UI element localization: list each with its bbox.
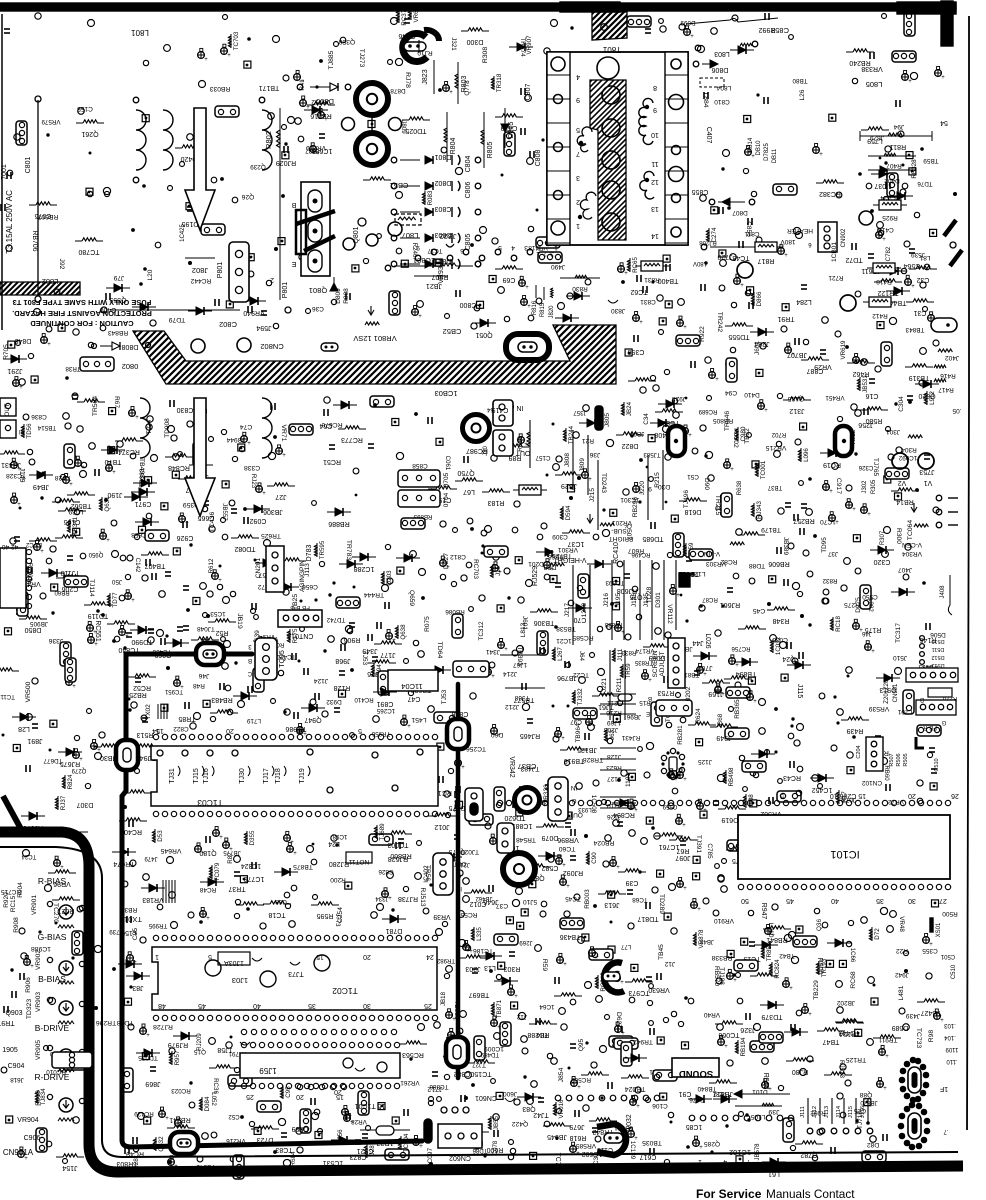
svg-text:C785: C785 (706, 843, 713, 859)
svg-text:Z201Z202: Z201Z202 (884, 676, 890, 704)
svg-text:J629: J629 (870, 134, 884, 141)
svg-text:RC15: RC15 (10, 895, 17, 912)
svg-text:R418: R418 (876, 278, 892, 285)
svg-text:TD64: TD64 (436, 642, 443, 659)
svg-text:+: + (491, 674, 495, 680)
svg-text:+: + (469, 949, 473, 955)
svg-text:D932: D932 (326, 698, 342, 705)
svg-text:CAUTION : FOR CONTINUED: CAUTION : FOR CONTINUED (30, 319, 134, 328)
svg-text:1C009: 1C009 (484, 1045, 504, 1052)
svg-text:RJ513: RJ513 (419, 887, 426, 906)
svg-text:JB905: JB905 (30, 620, 48, 627)
svg-text:TD082: TD082 (234, 545, 255, 552)
svg-text:IN: IN (570, 784, 577, 791)
svg-text:+: + (784, 253, 788, 259)
svg-text:C31: C31 (913, 309, 926, 316)
svg-text:J490: J490 (551, 263, 566, 270)
svg-text:0704: 0704 (443, 492, 450, 507)
svg-text:JB18: JB18 (440, 991, 447, 1006)
svg-text:FUSE ONLY WITH SAME TYPE F801: FUSE ONLY WITH SAME TYPE F801 T3 (13, 298, 152, 307)
svg-text:R831: R831 (644, 276, 660, 283)
svg-text:IN: IN (456, 885, 462, 891)
svg-text:RJ979: RJ979 (168, 1041, 188, 1048)
svg-text:D866: D866 (756, 291, 763, 306)
svg-text:TB171: TB171 (259, 84, 280, 91)
svg-text:TC001: TC001 (760, 460, 767, 479)
svg-text:+: + (730, 467, 734, 473)
svg-text:+: + (699, 1145, 703, 1151)
svg-text:TR444: TR444 (364, 591, 385, 598)
svg-text:C320: C320 (874, 558, 891, 565)
svg-text:T3.15AL 250V AC: T3.15AL 250V AC (5, 190, 14, 254)
svg-text:1F: 1F (940, 1085, 948, 1092)
svg-text:B-BIAS: B-BIAS (38, 974, 66, 984)
svg-text:NI: NI (19, 428, 25, 434)
svg-text:12: 12 (651, 178, 659, 185)
svg-text:+: + (219, 835, 223, 841)
svg-text:TD677: TD677 (43, 757, 63, 764)
svg-text:J30: J30 (483, 445, 489, 455)
svg-text:C69: C69 (502, 276, 515, 283)
svg-text:TD555: TD555 (728, 333, 749, 340)
svg-text:J891: J891 (27, 737, 42, 744)
svg-text:J510: J510 (893, 654, 907, 661)
svg-text:TD79: TD79 (169, 316, 186, 323)
svg-text:R600: R600 (487, 1146, 504, 1153)
svg-text:D079: D079 (542, 834, 559, 841)
svg-text:TD693: TD693 (605, 579, 624, 586)
svg-text:+: + (740, 283, 744, 289)
svg-text:R506: R506 (896, 753, 902, 766)
svg-text:J312: J312 (789, 407, 804, 414)
svg-text:L451: L451 (411, 716, 426, 723)
svg-text:VR39: VR39 (433, 913, 450, 920)
svg-text:CN201: CN201 (255, 557, 262, 578)
svg-text:.103: .103 (944, 1022, 956, 1028)
svg-text:TJ68: TJ68 (514, 694, 529, 701)
svg-text:+: + (829, 489, 833, 495)
svg-text:RJ37: RJ37 (60, 795, 67, 810)
svg-text:CNT01A: CNT01A (286, 632, 313, 639)
svg-text:1C032: 1C032 (775, 636, 782, 655)
svg-text:2: 2 (576, 198, 580, 205)
svg-text:J124: J124 (313, 677, 328, 684)
svg-text:RB860: RB860 (390, 852, 412, 859)
svg-text:C51: C51 (687, 473, 699, 480)
svg-text:VR585: VR585 (576, 1142, 597, 1149)
svg-text:R808: R808 (343, 288, 350, 304)
svg-text:TX02: TX02 (145, 704, 152, 720)
svg-text:RB483: RB483 (211, 696, 233, 703)
svg-text:+: + (703, 672, 707, 678)
svg-text:J114: J114 (836, 1105, 842, 1118)
svg-text:26: 26 (951, 792, 959, 799)
svg-text:TC703: TC703 (233, 31, 240, 50)
svg-text:RB498: RB498 (728, 767, 735, 786)
svg-text:TB823: TB823 (604, 621, 623, 628)
svg-text:L26: L26 (799, 89, 806, 100)
svg-text:J46: J46 (198, 672, 209, 679)
svg-text:J097: J097 (675, 854, 690, 861)
svg-text:C917: C917 (835, 478, 842, 494)
svg-text:TC317: TC317 (895, 623, 902, 643)
svg-text:JB22: JB22 (439, 232, 456, 241)
svg-text:T801: T801 (602, 45, 621, 54)
svg-text:R083: R083 (427, 190, 434, 205)
svg-text:TD323: TD323 (26, 999, 33, 1020)
svg-text:+: + (724, 1044, 728, 1050)
svg-text:+: + (60, 865, 64, 871)
svg-text:For Service: For Service (696, 1187, 762, 1200)
svg-text:9: 9 (576, 96, 580, 103)
svg-text:1C64: 1C64 (539, 1003, 555, 1010)
svg-text:C254: C254 (337, 907, 344, 923)
svg-text:+: + (452, 1017, 456, 1023)
svg-text:CB37: CB37 (518, 762, 537, 771)
svg-text:14: 14 (651, 232, 659, 239)
svg-text:J27: J27 (275, 493, 286, 500)
svg-text:D355: D355 (249, 830, 256, 845)
svg-text:9: 9 (416, 244, 420, 251)
svg-text:Q750: Q750 (457, 469, 474, 476)
svg-text:D808: D808 (122, 343, 139, 350)
svg-text:+: + (135, 415, 139, 421)
svg-text:+: + (204, 57, 208, 63)
svg-text:TC24: TC24 (454, 796, 461, 812)
svg-text:TD443: TD443 (838, 1029, 859, 1036)
svg-text:TC17: TC17 (427, 247, 443, 254)
svg-text:4: 4 (511, 244, 515, 251)
svg-text:VR40: VR40 (703, 1011, 720, 1018)
svg-text:+: + (688, 433, 692, 439)
svg-text:R702: R702 (771, 431, 786, 438)
svg-text:15 C206 10: 15 C206 10 (830, 792, 866, 799)
svg-text:TD035: TD035 (138, 1054, 158, 1061)
svg-text:+: + (566, 884, 570, 890)
svg-text:4: 4 (576, 73, 580, 80)
svg-text:TB875: TB875 (293, 863, 313, 870)
svg-text:TR296: TR296 (96, 1019, 117, 1026)
svg-text:R721: R721 (828, 274, 843, 281)
svg-text:V1: V1 (924, 479, 933, 486)
svg-text:+: + (40, 549, 44, 555)
svg-text:J127: J127 (607, 775, 621, 782)
svg-text:TC18: TC18 (268, 911, 285, 918)
svg-text:V-LIN: V-LIN (704, 550, 721, 557)
svg-text:L803: L803 (714, 50, 730, 57)
svg-text:+: + (764, 408, 768, 414)
svg-text:TD77: TD77 (112, 592, 119, 608)
svg-text:J63: J63 (609, 729, 616, 740)
svg-text:C802: C802 (219, 320, 237, 329)
svg-text:RC703: RC703 (472, 559, 479, 579)
svg-text:J601: J601 (754, 341, 761, 355)
svg-text:R200: R200 (330, 876, 346, 883)
svg-text:TJ18: TJ18 (275, 768, 282, 784)
svg-text:J949: J949 (716, 734, 731, 741)
svg-text:VR579: VR579 (41, 118, 60, 125)
svg-text:J12: J12 (516, 1013, 527, 1020)
svg-text:J712: J712 (427, 1085, 442, 1092)
svg-text:D801: D801 (435, 153, 452, 160)
svg-text:C: C (247, 670, 252, 676)
svg-text:+: + (131, 598, 135, 604)
svg-text:1C70: 1C70 (820, 518, 836, 525)
svg-text:VR901: VR901 (31, 895, 38, 915)
svg-text:TD56: TD56 (26, 423, 33, 439)
svg-text:R816: R816 (532, 300, 538, 315)
svg-text:C801: C801 (25, 157, 32, 174)
svg-text:TC733: TC733 (915, 1028, 922, 1049)
svg-text:TR546: TR546 (724, 411, 731, 431)
svg-text:C550: C550 (862, 593, 878, 600)
svg-text:JB19: JB19 (236, 613, 243, 629)
svg-text:+: + (588, 477, 592, 483)
svg-text:Q285: Q285 (704, 1140, 720, 1147)
svg-text:J269: J269 (519, 939, 533, 946)
svg-text:VR905: VR905 (35, 1040, 42, 1060)
svg-text:RC87: RC87 (702, 596, 718, 603)
svg-text:TB697: TB697 (469, 991, 490, 998)
svg-text:TR125: TR125 (846, 1056, 867, 1063)
svg-text:+: + (227, 53, 231, 59)
svg-text:R175: R175 (865, 626, 882, 633)
svg-text:RJ23: RJ23 (250, 474, 257, 489)
svg-text:+: + (771, 933, 775, 939)
svg-text:35: 35 (308, 1002, 316, 1009)
svg-text:L804: L804 (716, 84, 731, 91)
svg-text:J15: J15 (495, 565, 502, 576)
svg-text:B-DRIVE: B-DRIVE (35, 1023, 70, 1033)
svg-text:J217: J217 (564, 603, 571, 617)
svg-text:1C21: 1C21 (556, 637, 572, 644)
svg-text:R705: R705 (3, 344, 10, 360)
svg-text:0802: 0802 (122, 362, 139, 371)
svg-text:J149: J149 (18, 468, 25, 483)
svg-text:TB47: TB47 (823, 1038, 840, 1045)
svg-text:J618: J618 (10, 1076, 24, 1083)
svg-text:TR91: TR91 (777, 315, 794, 322)
svg-text:+: + (871, 649, 875, 655)
svg-text:C304: C304 (898, 396, 905, 412)
svg-text:TJ15: TJ15 (193, 768, 200, 784)
svg-text:TB244: TB244 (568, 425, 575, 444)
svg-text:1: 1 (155, 953, 159, 960)
svg-text:D300: D300 (467, 38, 484, 45)
svg-text:RJ343: RJ343 (756, 501, 763, 519)
svg-text:RB328: RB328 (911, 159, 918, 179)
svg-text:1J69: 1J69 (607, 719, 621, 726)
svg-text:RC382: RC382 (819, 190, 841, 197)
svg-text:TC60: TC60 (558, 845, 575, 852)
svg-text:+: + (683, 886, 687, 892)
svg-text:VR500: VR500 (25, 681, 32, 702)
svg-text:TB514: TB514 (37, 424, 56, 431)
svg-text:L267: L267 (557, 647, 564, 661)
svg-text:R215: R215 (654, 472, 661, 488)
svg-text:C510: C510 (951, 964, 957, 979)
svg-text:3: 3 (576, 174, 580, 181)
svg-text:+: + (449, 90, 453, 96)
svg-text:L24: L24 (328, 840, 340, 847)
svg-text:3: 3 (524, 244, 528, 251)
svg-text:AGINGPIN: AGINGPIN (299, 560, 306, 592)
svg-text:TC003: TC003 (387, 841, 408, 848)
svg-text:C926: C926 (177, 534, 194, 541)
svg-text:RC023: RC023 (171, 1087, 191, 1094)
svg-text:C855: C855 (692, 188, 709, 195)
svg-text:L802: L802 (42, 277, 59, 286)
svg-text:D227: D227 (443, 553, 450, 569)
svg-text:+: + (30, 964, 34, 970)
svg-text:Q180: Q180 (199, 849, 216, 856)
svg-text:C904: C904 (8, 1063, 25, 1070)
svg-text:J126: J126 (607, 813, 621, 820)
svg-text:C806: C806 (465, 182, 472, 199)
svg-text:ADJUST: ADJUST (659, 651, 666, 676)
svg-text:TC079: TC079 (214, 862, 221, 881)
svg-text:SCREEN: SCREEN (652, 650, 659, 677)
svg-text:+: + (721, 692, 725, 698)
svg-text:4: 4 (723, 1158, 727, 1165)
svg-text:TC113: TC113 (0, 693, 15, 699)
svg-text:D307: D307 (77, 801, 94, 808)
svg-text:C106: C106 (652, 1102, 668, 1109)
svg-text:C326: C326 (858, 464, 873, 471)
svg-text:RJ029: RJ029 (276, 159, 296, 166)
svg-text:+: + (577, 1085, 581, 1091)
svg-text:J408: J408 (940, 585, 946, 599)
svg-text:RB240: RB240 (849, 59, 871, 66)
svg-text:TC150: TC150 (470, 1070, 491, 1077)
svg-text:20: 20 (226, 727, 234, 734)
svg-text:1J03A: 1J03A (224, 959, 244, 966)
svg-text:27: 27 (939, 897, 947, 904)
svg-text:CN901: CN901 (893, 683, 899, 702)
svg-text:R48: R48 (193, 682, 205, 689)
svg-text:TB229: TB229 (813, 980, 820, 1000)
svg-text:RB60: RB60 (54, 589, 70, 595)
svg-text:TD742: TD742 (326, 616, 345, 623)
svg-text:TC45: TC45 (565, 895, 581, 902)
svg-text:+: + (418, 314, 422, 320)
svg-text:8: 8 (653, 84, 657, 91)
svg-text:D806: D806 (712, 66, 729, 73)
svg-text:+: + (595, 955, 599, 961)
svg-text:P801: P801 (282, 282, 289, 298)
svg-text:RJ738: RJ738 (398, 895, 418, 902)
svg-text:2: 2 (270, 276, 274, 283)
svg-text:C582: C582 (542, 864, 559, 871)
svg-text:RC410: RC410 (354, 696, 374, 703)
svg-text:1C683: 1C683 (312, 147, 333, 154)
svg-text:5J10: 5J10 (523, 898, 537, 905)
svg-text:TJ885: TJ885 (328, 50, 335, 69)
svg-text:Q631: Q631 (104, 496, 111, 512)
svg-text:13: 13 (651, 205, 659, 212)
svg-text:VR342: VR342 (508, 756, 515, 777)
svg-text:TB37: TB37 (767, 484, 782, 490)
svg-text:+: + (165, 1116, 169, 1122)
svg-text:Q632: Q632 (158, 1136, 165, 1152)
svg-text:RC689: RC689 (698, 408, 717, 414)
svg-text:D805: D805 (508, 122, 515, 139)
svg-text:+: + (79, 757, 83, 763)
svg-text:TC951: TC951 (164, 688, 183, 694)
svg-text:1109: 1109 (945, 1046, 959, 1052)
svg-text:+: + (911, 284, 915, 290)
svg-text:C906: C906 (24, 1135, 41, 1142)
svg-text:P801: P801 (217, 262, 224, 278)
svg-text:L052: L052 (210, 1092, 217, 1106)
svg-text:Q95: Q95 (578, 1038, 585, 1051)
svg-text:+: + (19, 385, 23, 391)
svg-text:C39: C39 (625, 879, 638, 886)
svg-text:R216: R216 (606, 709, 622, 716)
svg-text:TB964: TB964 (575, 723, 582, 742)
svg-text:C419: C419 (492, 406, 509, 413)
svg-text:VR112: VR112 (666, 604, 673, 624)
svg-text:C804: C804 (465, 156, 472, 173)
svg-text:J221: J221 (601, 678, 608, 692)
svg-text:B: B (920, 696, 924, 702)
svg-text:+: + (620, 980, 624, 986)
svg-text:+: + (682, 823, 686, 829)
svg-text:R833: R833 (621, 649, 636, 656)
svg-text:TD990: TD990 (131, 638, 152, 645)
svg-text:RB25: RB25 (129, 691, 147, 698)
svg-text:+: + (504, 647, 508, 653)
svg-text:R815: R815 (540, 302, 546, 317)
svg-text:J92: J92 (58, 259, 65, 270)
svg-text:Q950: Q950 (88, 551, 103, 557)
svg-text:1C288: 1C288 (354, 565, 375, 572)
svg-text:TC186: TC186 (473, 947, 493, 954)
svg-text:15 T1C01: 15 T1C01 (355, 1102, 386, 1109)
svg-text:L026: L026 (704, 633, 711, 648)
svg-text:R407: R407 (886, 162, 902, 169)
svg-text:J44: J44 (692, 639, 703, 646)
svg-text:TJ53: TJ53 (441, 689, 448, 704)
svg-text:R305: R305 (871, 479, 877, 494)
svg-text:C808: C808 (535, 150, 542, 167)
svg-text:RB365: RB365 (734, 699, 741, 719)
svg-text:IC402: IC402 (423, 865, 430, 883)
svg-text:R804: R804 (450, 138, 457, 155)
svg-text:25: 25 (246, 1093, 254, 1100)
svg-text:+: + (497, 733, 501, 739)
svg-text:R618: R618 (570, 1134, 587, 1141)
svg-text:C91: C91 (679, 1090, 692, 1097)
svg-text:.104: .104 (944, 1034, 956, 1040)
svg-text:RB706: RB706 (31, 230, 38, 251)
svg-text:J291: J291 (7, 367, 22, 374)
svg-text:TR942: TR942 (633, 1038, 653, 1045)
svg-text:D802: D802 (435, 179, 452, 186)
svg-text:RC442: RC442 (190, 277, 211, 284)
svg-text:J805: J805 (604, 413, 611, 427)
svg-text:D807: D807 (732, 209, 748, 216)
svg-text:+: + (908, 79, 912, 85)
svg-text:TR38: TR38 (65, 365, 81, 372)
svg-text:9: 9 (648, 485, 652, 492)
svg-text:J854: J854 (558, 1067, 565, 1082)
svg-text:D878: D878 (390, 87, 406, 94)
svg-text:Q903: Q903 (5, 1010, 22, 1017)
svg-text:1219: 1219 (581, 602, 588, 617)
svg-text:RC68: RC68 (850, 971, 857, 988)
svg-text:J823: J823 (422, 69, 429, 84)
